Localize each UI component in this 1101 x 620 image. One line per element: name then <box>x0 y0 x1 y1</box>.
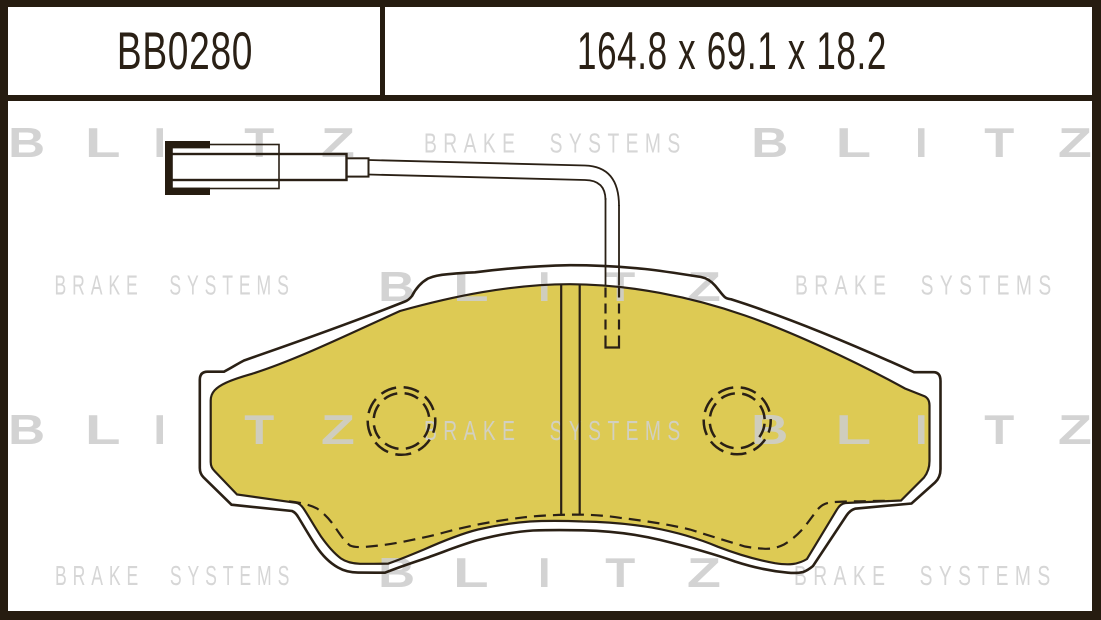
svg-text:I: I <box>538 549 551 596</box>
svg-text:B: B <box>751 119 788 166</box>
svg-text:B: B <box>8 119 45 166</box>
svg-text:BRAKE SYSTEMS: BRAKE SYSTEMS <box>794 562 1057 592</box>
svg-text:I: I <box>915 406 928 453</box>
svg-text:BRAKE SYSTEMS: BRAKE SYSTEMS <box>55 560 295 591</box>
svg-text:T: T <box>244 119 274 166</box>
svg-text:T: T <box>984 119 1014 166</box>
svg-text:B: B <box>378 263 415 310</box>
svg-text:Z: Z <box>1058 406 1092 453</box>
svg-text:T: T <box>605 549 635 596</box>
svg-text:B: B <box>8 406 45 453</box>
svg-text:BRAKE SYSTEMS: BRAKE SYSTEMS <box>424 417 687 447</box>
svg-text:BRAKE SYSTEMS: BRAKE SYSTEMS <box>55 269 295 300</box>
svg-text:T: T <box>244 406 274 453</box>
svg-text:L: L <box>85 406 121 453</box>
svg-text:L: L <box>836 406 872 453</box>
svg-text:T: T <box>984 406 1014 453</box>
svg-text:I: I <box>538 263 551 310</box>
svg-text:L: L <box>85 119 121 166</box>
svg-text:I: I <box>154 406 167 453</box>
svg-text:BRAKE SYSTEMS: BRAKE SYSTEMS <box>795 271 1058 301</box>
svg-text:L: L <box>836 119 872 166</box>
svg-text:BRAKE SYSTEMS: BRAKE SYSTEMS <box>424 129 687 159</box>
svg-text:I: I <box>915 119 928 166</box>
svg-text:Z: Z <box>321 406 355 453</box>
svg-text:I: I <box>154 119 167 166</box>
svg-text:Z: Z <box>1058 119 1092 166</box>
svg-text:L: L <box>453 549 489 596</box>
